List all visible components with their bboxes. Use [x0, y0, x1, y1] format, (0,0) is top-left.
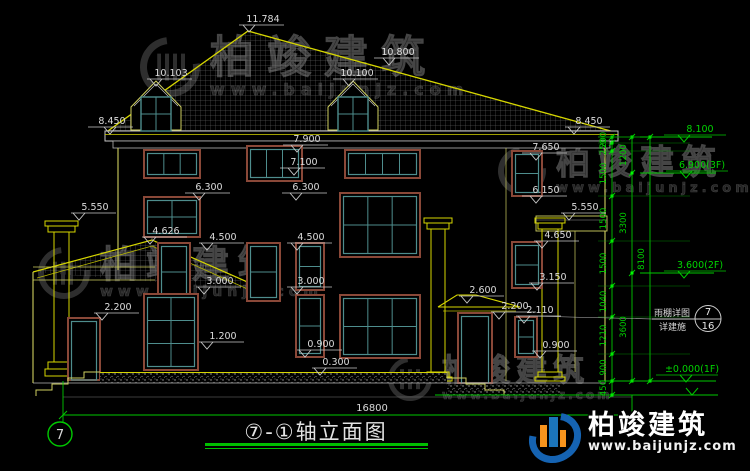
elevation-mark: 5.550: [71, 202, 116, 220]
pillar-center: [424, 218, 452, 381]
elevation-value: 5.550: [571, 202, 598, 213]
chain-dim: 1500: [599, 253, 609, 275]
elevation-value: 0.900: [542, 340, 569, 351]
window: [340, 295, 420, 358]
elevation-value: 4.626: [152, 226, 179, 237]
elevation-value: 7.100: [290, 157, 317, 168]
window: [144, 150, 200, 178]
elevation-value: 6.300: [292, 182, 319, 193]
chain-dim: 250: [599, 139, 609, 155]
window: [340, 193, 420, 257]
chain-dim: 1500: [599, 208, 609, 230]
dormer-window: [141, 97, 171, 131]
level-value: 8.100: [686, 124, 713, 135]
elevation-value: 3.000: [206, 276, 233, 287]
chain-dim: 900: [599, 359, 609, 375]
callout-text-top: 雨棚详图: [654, 307, 690, 319]
callout-detail-number: 7: [705, 307, 711, 318]
callout-text-bottom: 详建施: [659, 321, 686, 333]
elevation-value: 5.550: [81, 202, 108, 213]
story-dim: 3600: [619, 316, 629, 338]
axis-bubble-number: 7: [56, 428, 64, 443]
elevation-value: 0.300: [322, 357, 349, 368]
callout-sheet-number: 16: [702, 321, 715, 332]
brand-logo: 柏竣建筑 www.baijunjz.com: [528, 398, 750, 468]
dormer-window: [338, 97, 368, 131]
elevation-value: 8.450: [575, 116, 602, 127]
door: [458, 313, 492, 383]
ground: [33, 372, 718, 397]
elevation-value: 2.200: [104, 302, 131, 313]
elevation-value: 10.100: [340, 68, 373, 79]
level-mark: 3.600(2F): [640, 260, 726, 278]
elevation-mark: 10.800: [374, 47, 419, 65]
elevation-value: 6.150: [532, 185, 559, 196]
level-value: 6.900(3F): [679, 160, 725, 171]
total-height-dim: 8100: [637, 248, 647, 270]
level-mark: 8.100: [640, 124, 726, 142]
title-underline-thin: [205, 448, 428, 449]
elevation-value: 8.450: [98, 116, 125, 127]
level-value: ±0.000(1F): [665, 364, 719, 375]
elevation-value: 4.500: [297, 232, 324, 243]
elevation-value: 2.110: [526, 305, 553, 316]
elevation-value: 7.650: [532, 142, 559, 153]
drawing-title: ⑦-①轴立面图: [196, 416, 436, 446]
chain-dim: 450: [599, 380, 609, 396]
total-width-dim: 16800: [356, 403, 388, 414]
level-value: 3.600(2F): [677, 260, 723, 271]
window: [247, 243, 280, 301]
elevation-value: 6.300: [195, 182, 222, 193]
cad-canvas: 柏竣建筑 www.baijunjz.com 柏竣建筑 www.baijunjz.…: [0, 0, 750, 471]
elevation-mark: 6.300: [282, 182, 327, 200]
chain-dim: 1210: [599, 325, 609, 347]
brand-logo-icon: [528, 410, 580, 456]
story-dim: 1200: [619, 144, 629, 166]
level-mark: ±0.000(1F): [598, 364, 719, 382]
chain-dim: 1040: [599, 291, 609, 313]
level-mark: 6.900(3F): [640, 160, 728, 178]
elevation-value: 10.103: [154, 68, 187, 79]
window: [144, 294, 198, 370]
window: [345, 150, 420, 178]
elevation-value: 10.800: [381, 47, 414, 58]
door: [68, 318, 100, 380]
elevation-value: 4.500: [209, 232, 236, 243]
elevation-value: 3.150: [539, 272, 566, 283]
elevation-value: 0.900: [307, 339, 334, 350]
chain-dim: 1500: [599, 163, 609, 185]
elevation-mark: 11.784: [239, 14, 284, 32]
elevation-mark: 4.500: [199, 232, 244, 250]
elevation-mark: 3.000: [287, 276, 332, 294]
window: [158, 243, 190, 301]
elevation-mark: 0.900: [532, 340, 577, 358]
elevation-value: 2.600: [469, 285, 496, 296]
window: [512, 242, 542, 288]
elevation-value: 4.650: [544, 230, 571, 241]
brand-name: 柏竣建筑: [588, 412, 737, 440]
elevation-value: 11.784: [246, 14, 279, 25]
elevation-mark: 1.200: [199, 331, 244, 349]
elevation-value: 7.900: [293, 134, 320, 145]
brand-url: www.baijunjz.com: [588, 440, 737, 454]
story-dim: 3300: [619, 212, 629, 234]
elevation-value: 2.200: [501, 301, 528, 312]
elevation-value: 1.200: [209, 331, 236, 342]
elevation-value: 3.000: [297, 276, 324, 287]
